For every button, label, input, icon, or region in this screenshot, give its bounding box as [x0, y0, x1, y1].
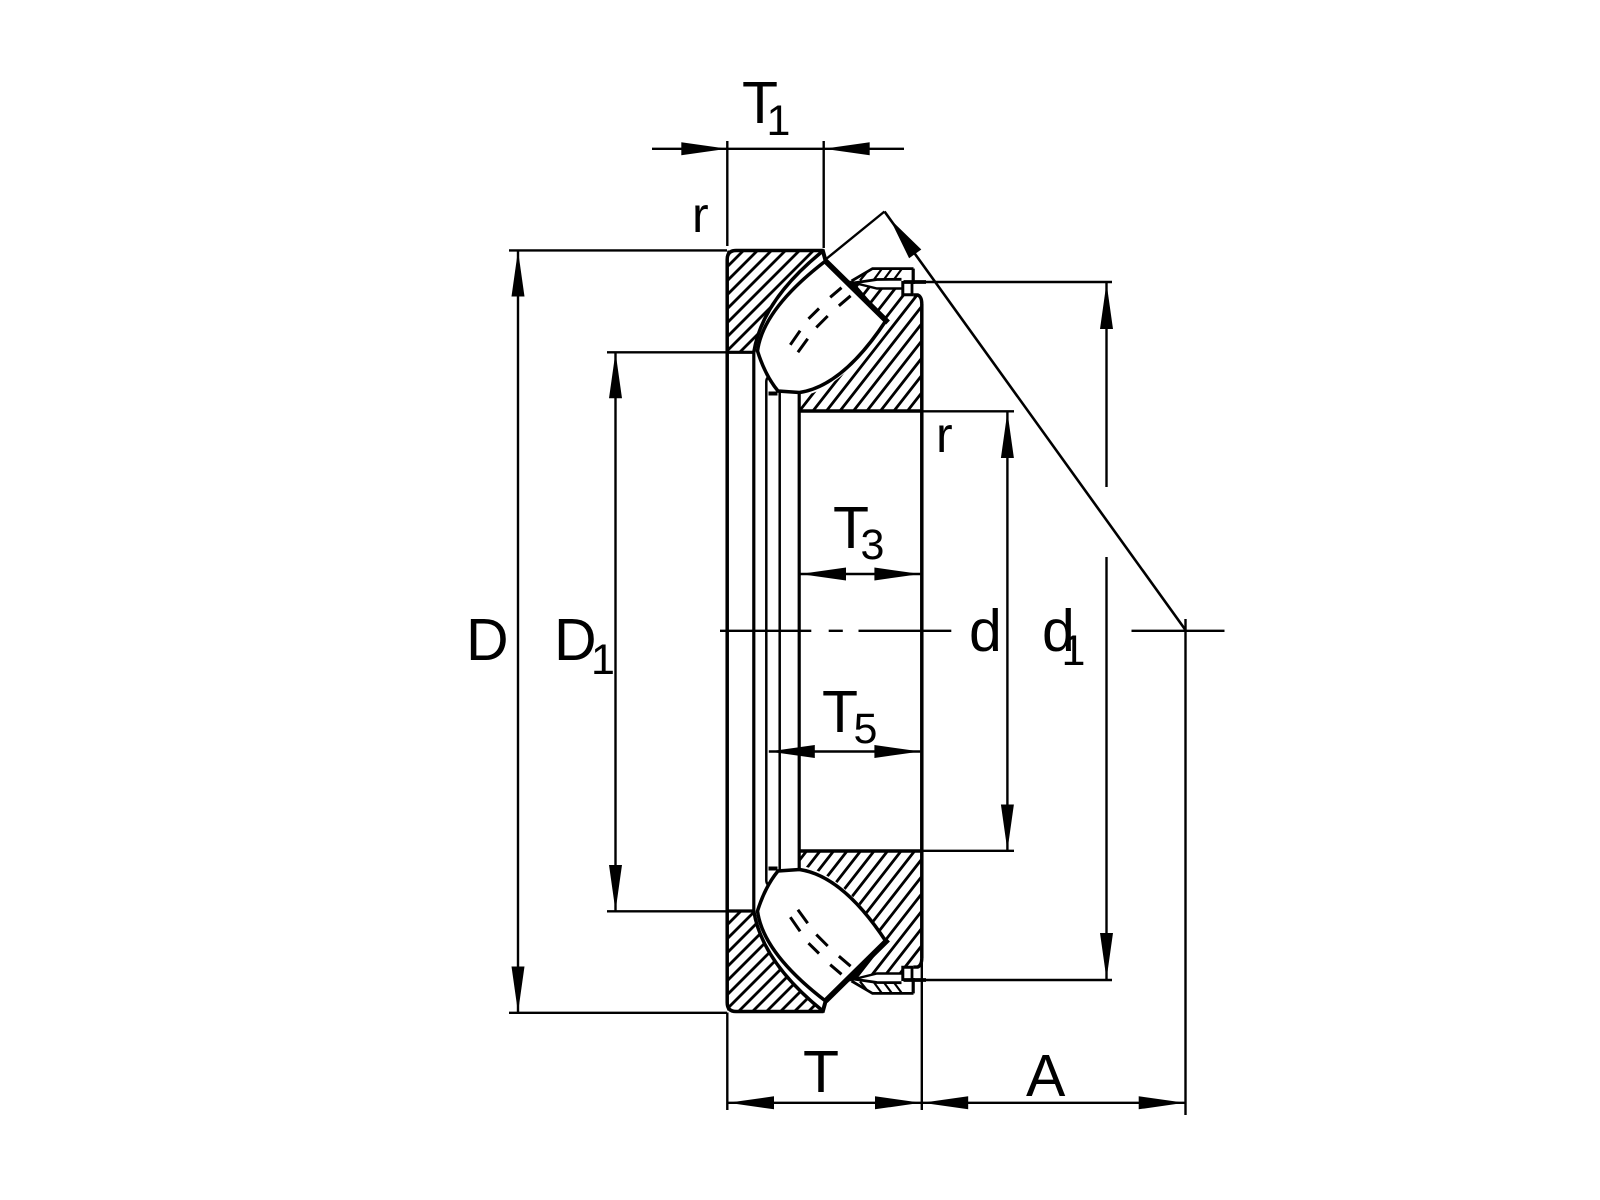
svg-text:5: 5: [854, 705, 878, 753]
svg-text:d: d: [969, 598, 1002, 664]
svg-text:D: D: [466, 607, 509, 673]
svg-text:1: 1: [767, 97, 791, 145]
svg-text:A: A: [1026, 1043, 1066, 1109]
svg-text:T: T: [803, 1039, 839, 1105]
svg-text:3: 3: [861, 521, 885, 569]
svg-text:1: 1: [1062, 627, 1086, 675]
svg-text:r: r: [692, 187, 709, 243]
svg-text:r: r: [936, 407, 953, 463]
svg-text:1: 1: [591, 636, 615, 684]
